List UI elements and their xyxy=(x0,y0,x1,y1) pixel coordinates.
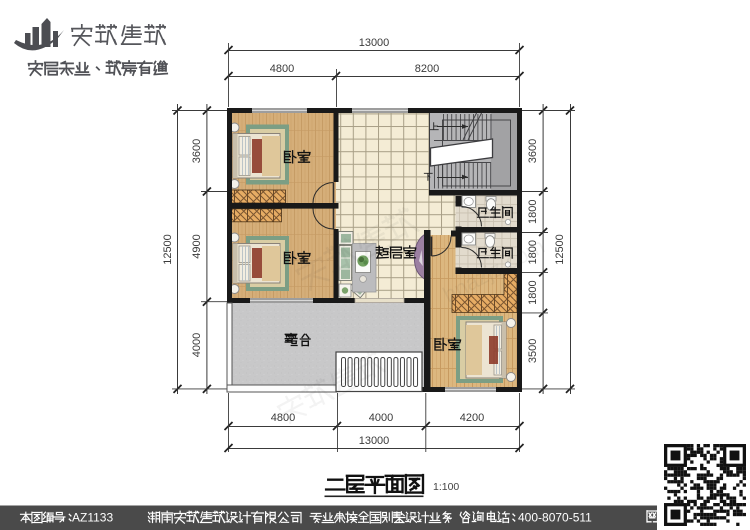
svg-text:AZ1133: AZ1133 xyxy=(72,511,113,525)
svg-text:4800: 4800 xyxy=(270,63,294,75)
svg-text:1800: 1800 xyxy=(527,199,539,223)
svg-text:1800: 1800 xyxy=(527,280,539,304)
svg-text:4000: 4000 xyxy=(191,333,203,357)
svg-text:3500: 3500 xyxy=(527,339,539,363)
svg-text:8200: 8200 xyxy=(415,63,439,75)
svg-text:3600: 3600 xyxy=(527,139,539,163)
svg-text:4200: 4200 xyxy=(460,412,484,424)
svg-text:4000: 4000 xyxy=(369,412,393,424)
svg-text:12500: 12500 xyxy=(162,234,174,265)
svg-text:13000: 13000 xyxy=(359,435,390,447)
svg-text:12500: 12500 xyxy=(554,234,566,265)
svg-text:4900: 4900 xyxy=(191,234,203,258)
svg-text:3600: 3600 xyxy=(191,139,203,163)
svg-text:1:100: 1:100 xyxy=(433,481,459,493)
svg-text:13000: 13000 xyxy=(359,37,390,49)
svg-text:400-8070-511: 400-8070-511 xyxy=(518,511,592,525)
